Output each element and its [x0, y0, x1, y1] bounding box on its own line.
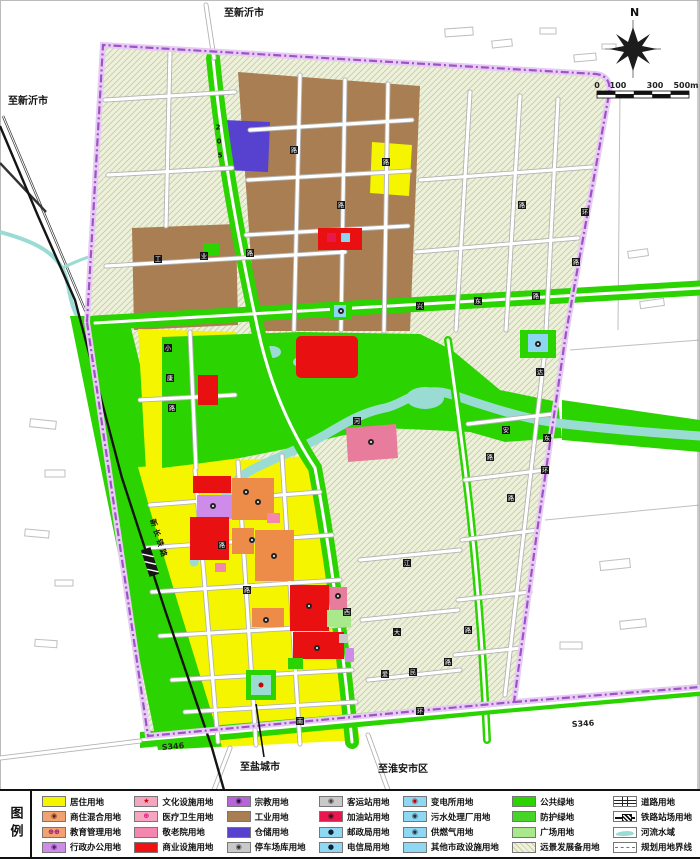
nursing-home-block [267, 513, 280, 523]
legend-swatch-icon: ⊕⊕ [48, 829, 60, 836]
legend-label: 停车场库用地 [255, 841, 306, 853]
legend-title-text: 图例 [6, 806, 25, 842]
road-chip-char: 路 [519, 201, 525, 209]
road-chip-char: 环 [542, 467, 548, 474]
legend-label: 变电所用地 [431, 796, 474, 808]
commercial-block-center [190, 517, 229, 560]
post-office-chip [341, 233, 350, 242]
legend-label: 仓储用地 [255, 826, 289, 838]
legend-swatch-icon: ● [328, 844, 334, 851]
legend-label: 电信局用地 [347, 841, 390, 853]
legend-item: 规划用地界线 [613, 841, 692, 854]
industrial-zone-north [238, 72, 420, 331]
legend-swatch [512, 811, 536, 822]
road-chip-char: 路 [383, 158, 389, 166]
scale-bar: 0 100 300 500m [594, 81, 698, 98]
commercial-block-north [318, 228, 362, 250]
legend-label: 加油站用地 [347, 811, 390, 823]
compass-star [609, 27, 657, 71]
svg-text:500m: 500m [673, 81, 698, 90]
road-chip-char: 环 [582, 209, 588, 216]
legend-swatch: ◉ [403, 827, 427, 838]
legend-label: 文化设施用地 [162, 796, 213, 808]
road-chip-char: 路 [291, 146, 297, 154]
legend-swatch-icon: ◉ [412, 829, 418, 836]
legend-label: 工业用地 [255, 811, 289, 823]
road-chip-char: 达 [537, 368, 543, 376]
legend-column: ◉客运站用地◉加油站用地●邮政局用地●电信局用地 [319, 795, 390, 854]
svg-text:300: 300 [647, 81, 664, 90]
road-chip-char: 路 [244, 586, 250, 594]
legend-item: ●电信局用地 [319, 841, 390, 854]
road-chip: 0 [217, 138, 222, 146]
legend-item: ◉加油站用地 [319, 810, 390, 823]
label-to-xinyi-left: 至新沂市 [8, 94, 48, 107]
legend-swatch [227, 811, 251, 822]
legend-swatch: ◉ [319, 811, 343, 822]
legend-swatch [512, 796, 536, 807]
legend-swatch: ● [319, 842, 343, 853]
label-s346-right: S346 [572, 718, 595, 729]
legend-swatch: ⊕⊕ [42, 827, 66, 838]
legend-item: 公共绿地 [512, 795, 600, 808]
legend-column: ◉变电所用地◉污水处理厂用地◉供燃气用地其他市政设施用地 [403, 795, 499, 854]
legend-panel: 图例 居住用地◉商住混合用地⊕⊕教育管理用地◉行政办公用地★文化设施用地⊕医疗卫… [0, 789, 700, 859]
legend-column: ◉宗教用地工业用地仓储用地◉停车场库用地 [227, 795, 306, 854]
legend-label: 防护绿地 [540, 811, 574, 823]
legend-swatch [42, 796, 66, 807]
legend-swatch-icon: ★ [143, 798, 149, 805]
legend-item: ⊕⊕教育管理用地 [42, 826, 121, 839]
legend-item: ◉供燃气用地 [403, 826, 499, 839]
legend-swatch [134, 842, 158, 853]
road-chip-char: 业 [201, 252, 207, 260]
legend-swatch [613, 811, 637, 822]
minor-outside-road [0, 163, 46, 212]
legend-item: ◉行政办公用地 [42, 841, 121, 854]
legend-item: 道路用地 [613, 795, 692, 808]
legend-swatch: ◉ [319, 796, 343, 807]
road-chip-char: 路 [338, 201, 344, 209]
legend-label: 铁路站场用地 [641, 811, 692, 823]
legend-label: 敬老院用地 [162, 826, 205, 838]
road-chip: 5 [218, 152, 223, 160]
legend-swatch-icon: ◉ [236, 798, 242, 805]
compass-rose: N [605, 6, 661, 78]
road-chip-char: 河 [354, 417, 360, 425]
legend-label: 广场用地 [540, 826, 574, 838]
legend-swatch [512, 827, 536, 838]
legend-swatch-icon: ◉ [236, 844, 242, 851]
land-use-map: 205工业路路路路兴东路环路路环达安东路路江河小康路西大路爱民路南环路路 至新沂… [0, 0, 700, 790]
road-chip-char: 路 [445, 658, 451, 666]
legend-item: 防护绿地 [512, 810, 600, 823]
legend-label: 公共绿地 [540, 796, 574, 808]
legend-item: 其他市政设施用地 [403, 841, 499, 854]
legend-label: 医疗卫生用地 [162, 811, 213, 823]
legend-item: 商业设施用地 [134, 841, 213, 854]
legend-label: 规划用地界线 [641, 841, 692, 853]
road-chip-char: 路 [169, 404, 175, 412]
legend-swatch: ◉ [227, 842, 251, 853]
legend-swatch [134, 827, 158, 838]
legend-label: 商业设施用地 [162, 841, 213, 853]
legend-swatch-icon: ◉ [51, 813, 57, 820]
legend-swatch: ◉ [403, 796, 427, 807]
legend-swatch [403, 842, 427, 853]
road-chip-char: 兴 [417, 302, 423, 310]
road-chip-char: 西 [344, 609, 350, 616]
legend-label: 供燃气用地 [431, 826, 474, 838]
road-chip-char: 环 [417, 708, 423, 715]
legend-column: 公共绿地防护绿地广场用地远景发展备用地 [512, 795, 600, 854]
legend-item: ◉变电所用地 [403, 795, 499, 808]
legend-swatch-icon: ● [328, 829, 334, 836]
legend-item: 仓储用地 [227, 826, 306, 839]
legend-label: 宗教用地 [255, 796, 289, 808]
legend-column: 居住用地◉商住混合用地⊕⊕教育管理用地◉行政办公用地 [42, 795, 121, 854]
commercial-block-park [296, 336, 358, 378]
road-chip-char: 路 [247, 249, 253, 257]
legend-swatch [512, 842, 536, 853]
label-to-xinyi-top: 至新沂市 [224, 6, 264, 19]
stream-northwest [0, 232, 78, 318]
legend-column: 道路用地铁路站场用地河流水域规划用地界线 [613, 795, 692, 854]
legend-title: 图例 [0, 791, 32, 857]
road-chip-char: 康 [167, 374, 173, 382]
legend-item: 敬老院用地 [134, 826, 213, 839]
legend-swatch [227, 827, 251, 838]
legend-label: 远景发展备用地 [540, 841, 600, 853]
label-to-huaian: 至淮安市区 [378, 762, 428, 775]
road-chip-char: 民 [410, 669, 416, 676]
legend-item: ◉污水处理厂用地 [403, 810, 499, 823]
road-chip-char: 小 [165, 344, 171, 352]
commercial-block-west [198, 375, 218, 405]
legend-item: ⊕医疗卫生用地 [134, 810, 213, 823]
legend-swatch-icon: ◉ [328, 813, 334, 820]
svg-text:100: 100 [610, 81, 627, 90]
legend-swatch: ◉ [42, 811, 66, 822]
legend-label: 污水处理厂用地 [431, 811, 491, 823]
legend-items: 居住用地◉商住混合用地⊕⊕教育管理用地◉行政办公用地★文化设施用地⊕医疗卫生用地… [32, 791, 700, 857]
legend-label: 其他市政设施用地 [431, 841, 499, 853]
legend-label: 商住混合用地 [70, 811, 121, 823]
legend-swatch: ◉ [403, 811, 427, 822]
road-chip-char: 爱 [382, 670, 388, 678]
legend-swatch-icon: ◉ [412, 798, 418, 805]
legend-swatch-icon: ◉ [51, 844, 57, 851]
scale-bar-segments [597, 91, 689, 98]
legend-item: 居住用地 [42, 795, 121, 808]
road-chip-char: 路 [219, 541, 225, 549]
legend-item: ◉客运站用地 [319, 795, 390, 808]
legend-swatch: ⊕ [134, 811, 158, 822]
label-s346-left: S346 [161, 741, 185, 752]
legend-item: ◉商住混合用地 [42, 810, 121, 823]
legend-item: 河流水域 [613, 826, 692, 839]
road-chip-char: 路 [533, 292, 539, 300]
legend-swatch-icon: ⊕ [143, 813, 149, 820]
road-chip-char: 大 [394, 628, 400, 636]
legend-label: 河流水域 [641, 826, 675, 838]
legend-item: 广场用地 [512, 826, 600, 839]
legend-swatch [613, 796, 637, 807]
legend-label: 行政办公用地 [70, 841, 121, 853]
parking-chip [339, 634, 348, 643]
legend-item: ◉停车场库用地 [227, 841, 306, 854]
road-chip-char: 江 [404, 560, 410, 567]
compass-north-label: N [630, 6, 639, 19]
legend-swatch-icon: ◉ [412, 813, 418, 820]
legend-item: 铁路站场用地 [613, 810, 692, 823]
map-canvas: 205工业路路路路兴东路环路路环达安东路路江河小康路西大路爱民路南环路路 至新沂… [0, 0, 700, 790]
legend-item: ◉宗教用地 [227, 795, 306, 808]
legend-label: 教育管理用地 [70, 826, 121, 838]
legend-label: 客运站用地 [347, 796, 390, 808]
road-chip-char: 东 [475, 297, 481, 305]
road-chip-char: 南 [297, 717, 303, 725]
legend-swatch [613, 827, 637, 838]
road-chip-char: 路 [573, 258, 579, 266]
gas-station-chip [327, 233, 336, 242]
lake-central [406, 387, 444, 409]
road-chip-char: 路 [508, 494, 514, 502]
legend-label: 道路用地 [641, 796, 675, 808]
legend-swatch: ◉ [42, 842, 66, 853]
legend-swatch [613, 842, 637, 853]
legend-item: 远景发展备用地 [512, 841, 600, 854]
legend-swatch: ★ [134, 796, 158, 807]
legend-label: 邮政局用地 [347, 826, 390, 838]
legend-swatch: ● [319, 827, 343, 838]
legend-swatch-icon: ◉ [328, 798, 334, 805]
svg-text:0: 0 [594, 81, 600, 90]
legend-label: 居住用地 [70, 796, 104, 808]
label-to-yancheng: 至盐城市 [240, 760, 280, 773]
planning-map-page: 205工业路路路路兴东路环路路环达安东路路江河小康路西大路爱民路南环路路 至新沂… [0, 0, 700, 859]
legend-item: 工业用地 [227, 810, 306, 823]
road-chip-char: 安 [503, 426, 509, 434]
legend-item: ★文化设施用地 [134, 795, 213, 808]
road-chip-char: 工 [155, 256, 161, 263]
road-chip-char: 东 [544, 434, 550, 442]
road-chip-char: 路 [487, 453, 493, 461]
legend-item: ●邮政局用地 [319, 826, 390, 839]
road-chip-char: 路 [465, 626, 471, 634]
legend-swatch: ◉ [227, 796, 251, 807]
road-chip: 2 [216, 124, 221, 132]
legend-column: ★文化设施用地⊕医疗卫生用地敬老院用地商业设施用地 [134, 795, 213, 854]
